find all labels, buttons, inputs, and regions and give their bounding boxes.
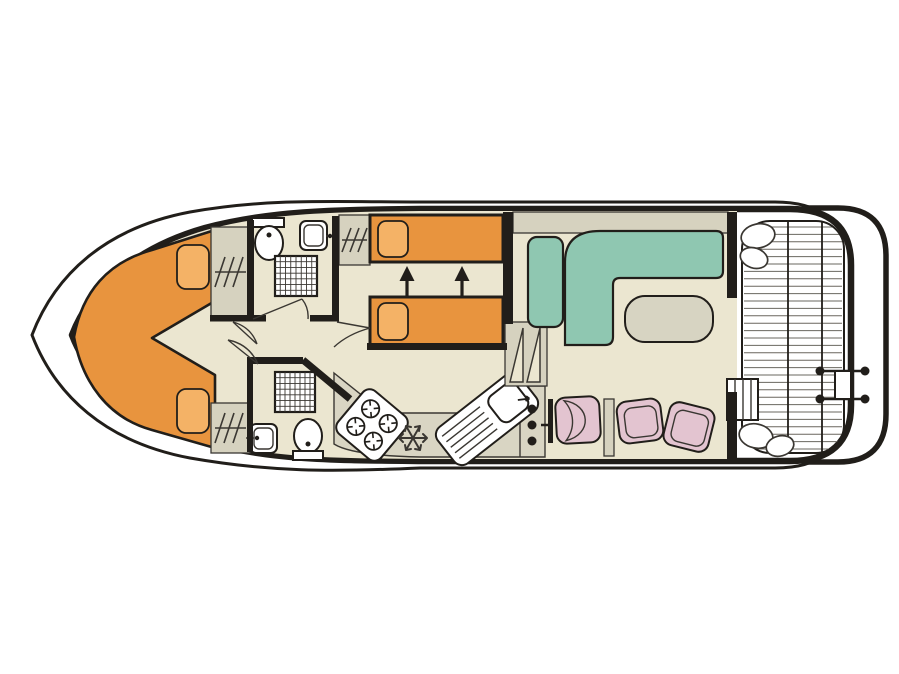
boat-floor-plan: [0, 0, 899, 674]
shower-icon: [275, 372, 315, 412]
wardrobe-mid-top: [339, 215, 370, 265]
helm-seat: [555, 396, 601, 444]
v-berth-pillow-top: [177, 245, 209, 289]
floor-plan-svg: [0, 0, 899, 674]
toilet-icon: [293, 419, 323, 460]
bed-pillow: [378, 303, 408, 340]
helm-divider: [604, 399, 614, 456]
wardrobe-galley: [505, 322, 547, 386]
console-knob: [528, 405, 537, 414]
saloon-table: [625, 296, 713, 342]
stool: [616, 397, 665, 444]
sofa-bench: [528, 237, 563, 327]
saloon-side-shelf: [513, 212, 728, 233]
console-knob: [528, 421, 537, 430]
wardrobe-bow-top: [211, 227, 250, 318]
wardrobe-bow-bottom: [211, 403, 250, 453]
console-knob: [528, 437, 537, 446]
shower-icon: [275, 256, 317, 296]
bed-pillow: [378, 221, 408, 257]
helm-console-bar: [548, 399, 553, 443]
v-berth-pillow-bottom: [177, 389, 209, 433]
